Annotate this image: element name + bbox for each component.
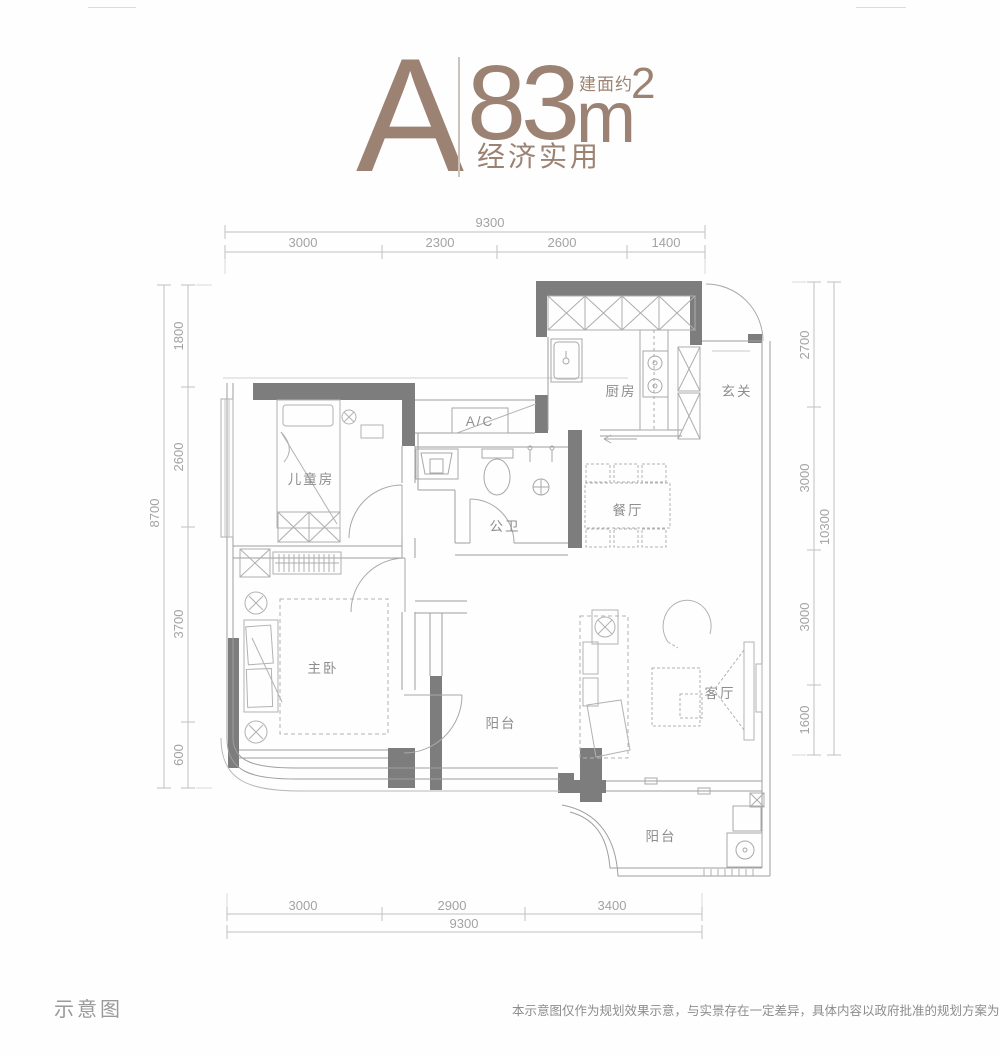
dim-top-seg-2: 2300 xyxy=(426,235,455,250)
dim-left-seg-3: 3700 xyxy=(171,610,186,639)
dimension-annotations xyxy=(157,225,841,939)
dim-top-seg-3: 2600 xyxy=(548,235,577,250)
dim-bottom-total: 9300 xyxy=(450,916,479,931)
master-nightstands xyxy=(245,592,267,743)
dim-bottom-seg-3: 3400 xyxy=(598,898,627,913)
dim-top-total: 9300 xyxy=(476,215,505,230)
shower xyxy=(528,446,554,495)
room-label-living-room: 客厅 xyxy=(705,685,736,701)
room-label-master-bedroom: 主卧 xyxy=(308,661,339,676)
room-label-balcony-middle: 阳台 xyxy=(486,716,517,731)
dim-right-seg-3: 3000 xyxy=(797,603,812,632)
armchair xyxy=(663,600,711,648)
kids-desk xyxy=(361,425,383,438)
room-label-bathroom: 公卫 xyxy=(490,519,521,534)
room-label-dining: 餐厅 xyxy=(613,503,644,518)
dim-left-seg-4: 600 xyxy=(171,744,186,766)
room-label-kids-room: 儿童房 xyxy=(288,471,335,487)
dim-top-seg-4: 1400 xyxy=(652,235,681,250)
room-labels: 厨房 玄关 儿童房 公卫 餐厅 主卧 阳台 客厅 阳台 xyxy=(288,383,753,844)
floorplan-svg: 9300 3000 2300 2600 1400 3000 2900 3400 … xyxy=(0,0,1000,1055)
dim-left-seg-1: 1800 xyxy=(171,322,186,351)
toilet xyxy=(482,449,513,495)
washbasin xyxy=(416,449,458,479)
schematic-caption: 示意图 xyxy=(54,1000,123,1020)
room-label-balcony-bottom: 阳台 xyxy=(646,829,677,844)
room-label-kitchen: 厨房 xyxy=(606,384,637,399)
room-label-ac: A/C xyxy=(466,414,495,429)
sofa-side-table xyxy=(592,610,618,644)
dim-left-seg-2: 2600 xyxy=(171,443,186,472)
doors xyxy=(349,284,763,753)
dim-top-seg-1: 3000 xyxy=(289,235,318,250)
dimension-labels: 9300 3000 2300 2600 1400 3000 2900 3400 … xyxy=(147,215,832,931)
dim-right-seg-1: 2700 xyxy=(797,331,812,360)
entry-door-arc xyxy=(706,284,763,341)
kids-bed xyxy=(277,400,340,528)
kitchen-stove xyxy=(643,351,668,397)
master-door-arc xyxy=(351,558,405,612)
dim-right-seg-4: 1600 xyxy=(797,706,812,735)
kids-room-door-arc xyxy=(349,485,402,538)
ac-closet: A/C xyxy=(452,408,508,433)
dim-right-total: 10300 xyxy=(817,509,832,545)
disclaimer-text: 本示意图仅作为规划效果示意，与实景存在一定差异，具体内容以政府批准的规划方案为准… xyxy=(512,1005,1000,1018)
kids-side-table xyxy=(342,410,356,424)
kitchen-sink xyxy=(551,339,582,382)
floorplan-page: A 83 m 建面约 2 经济实用 xyxy=(0,0,1000,1055)
furniture xyxy=(244,400,762,758)
kitchen-counter xyxy=(640,330,668,430)
coffee-table xyxy=(652,668,702,726)
dim-left-total: 8700 xyxy=(147,499,162,528)
dim-right-seg-2: 3000 xyxy=(797,464,812,493)
hanging-wardrobe xyxy=(273,552,341,574)
dim-bottom-seg-1: 3000 xyxy=(289,898,318,913)
dim-bottom-seg-2: 2900 xyxy=(438,898,467,913)
room-label-foyer: 玄关 xyxy=(722,383,753,399)
washing-machine xyxy=(727,806,762,867)
